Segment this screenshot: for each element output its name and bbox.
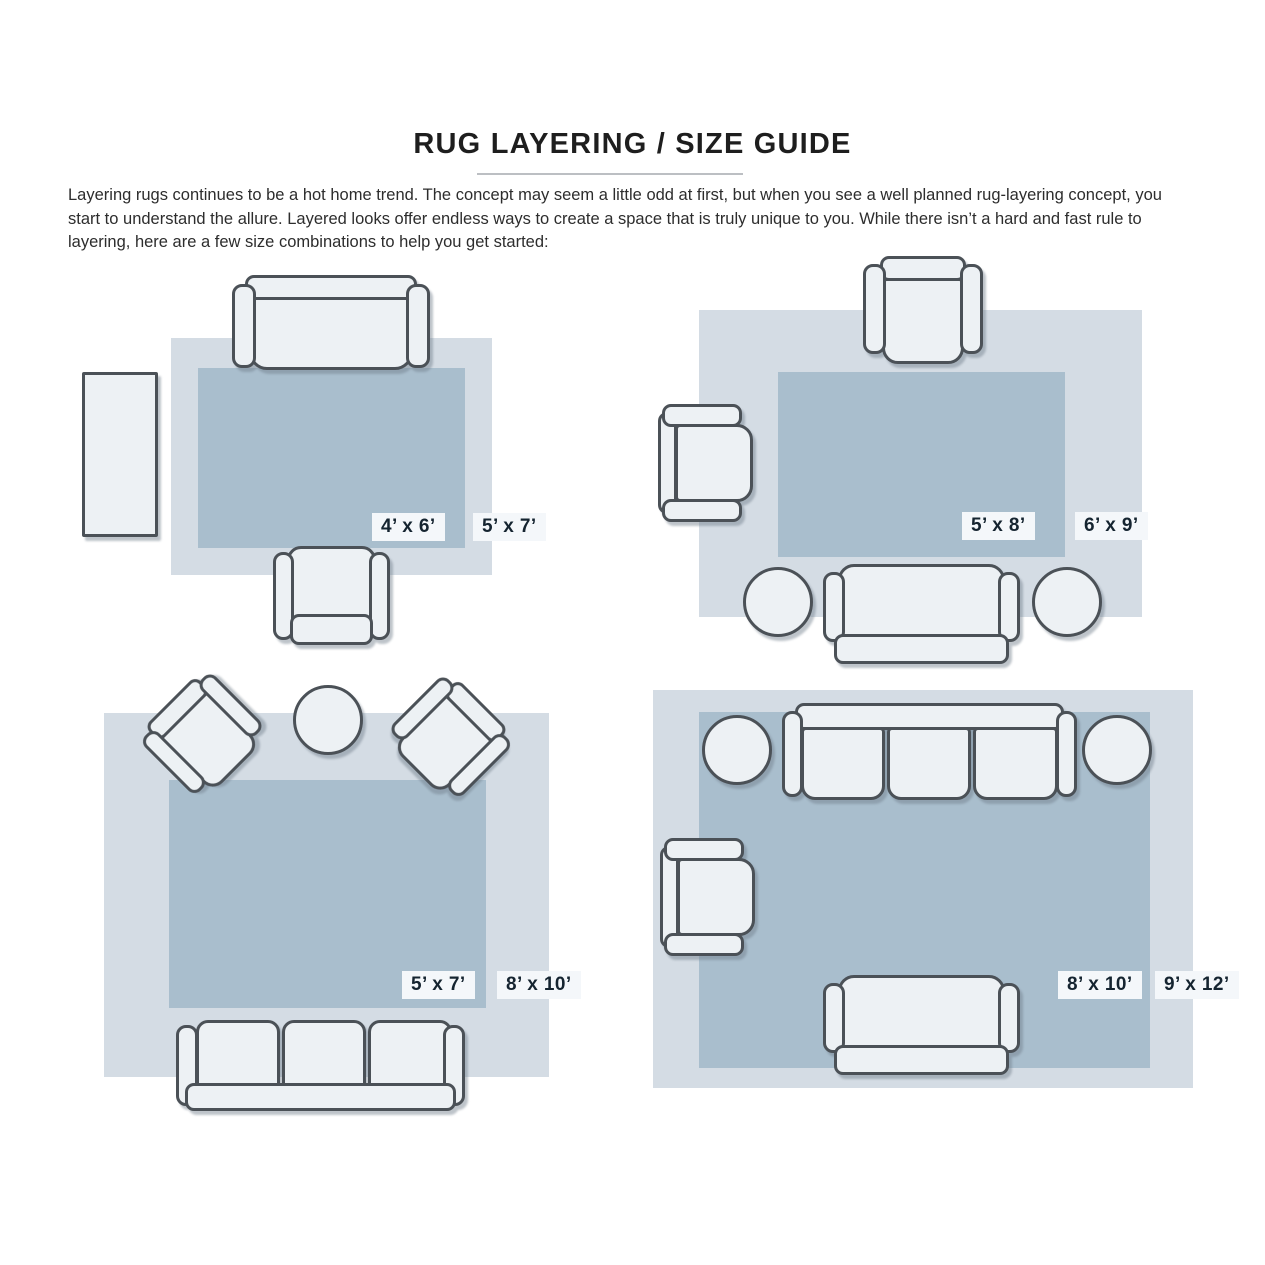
title-divider xyxy=(477,173,743,175)
intro-paragraph: Layering rugs continues to be a hot home… xyxy=(68,184,1196,255)
outer-rug-size-label: 8’ x 10’ xyxy=(497,971,581,999)
sofa-arm xyxy=(998,572,1020,642)
seat-cushion xyxy=(801,727,885,800)
ottoman xyxy=(1082,715,1152,785)
page-title: RUG LAYERING / SIZE GUIDE xyxy=(0,128,1265,161)
sofa xyxy=(232,275,430,370)
seat-cushion xyxy=(973,727,1058,800)
inner-rug-size-label: 8’ x 10’ xyxy=(1058,971,1142,999)
sofa xyxy=(176,1020,465,1111)
outer-rug-size-label: 9’ x 12’ xyxy=(1155,971,1239,999)
inner-rug-size-label: 4’ x 6’ xyxy=(372,513,445,541)
seat-cushion xyxy=(196,1020,280,1088)
sofa-arm xyxy=(998,983,1020,1053)
armchair xyxy=(658,404,755,522)
inner-rug-size-label: 5’ x 7’ xyxy=(402,971,475,999)
ottoman xyxy=(702,715,772,785)
ottoman xyxy=(743,567,813,637)
chair-seat xyxy=(882,278,964,364)
side-table xyxy=(82,372,158,537)
ottoman-top xyxy=(1082,715,1152,785)
chair-arm xyxy=(662,404,742,427)
sofa-seat xyxy=(838,975,1005,1051)
outer-rug-size-label: 6’ x 9’ xyxy=(1075,512,1148,540)
chair-arm xyxy=(960,264,983,354)
sofa-arm xyxy=(232,284,256,368)
table-top xyxy=(82,372,158,537)
sofa-arm xyxy=(823,983,845,1053)
armchair xyxy=(863,256,983,366)
armchair xyxy=(273,546,390,645)
sofa-back xyxy=(185,1083,456,1111)
ottoman-top xyxy=(1032,567,1102,637)
chair-seat xyxy=(677,858,755,936)
armchair xyxy=(660,838,757,956)
chair-arm xyxy=(863,264,886,354)
sofa-arm xyxy=(782,711,803,797)
seat-cushion xyxy=(368,1020,452,1088)
chair-arm xyxy=(664,933,744,956)
sofa-seat xyxy=(249,297,413,370)
rug-size-guide-page: RUG LAYERING / SIZE GUIDE Layering rugs … xyxy=(0,0,1265,1265)
chair-seat xyxy=(675,424,753,502)
ottoman-top xyxy=(702,715,772,785)
loveseat xyxy=(823,975,1020,1075)
loveseat xyxy=(823,564,1020,664)
sofa-seat xyxy=(838,564,1005,640)
sofa-back xyxy=(834,634,1009,664)
ottoman-top xyxy=(743,567,813,637)
table-top xyxy=(293,685,363,755)
sofa xyxy=(782,703,1077,800)
outer-rug-size-label: 5’ x 7’ xyxy=(473,513,546,541)
chair-arm xyxy=(662,499,742,522)
sofa-arm xyxy=(406,284,430,368)
sofa-back xyxy=(834,1045,1009,1075)
sofa-arm xyxy=(1056,711,1077,797)
chair-back xyxy=(290,614,373,645)
inner-rug-size-label: 5’ x 8’ xyxy=(962,512,1035,540)
sofa-back xyxy=(795,703,1064,730)
seat-cushion xyxy=(887,727,971,800)
sofa-arm xyxy=(823,572,845,642)
round-table xyxy=(293,685,363,755)
ottoman xyxy=(1032,567,1102,637)
seat-cushion xyxy=(282,1020,366,1088)
chair-arm xyxy=(664,838,744,861)
